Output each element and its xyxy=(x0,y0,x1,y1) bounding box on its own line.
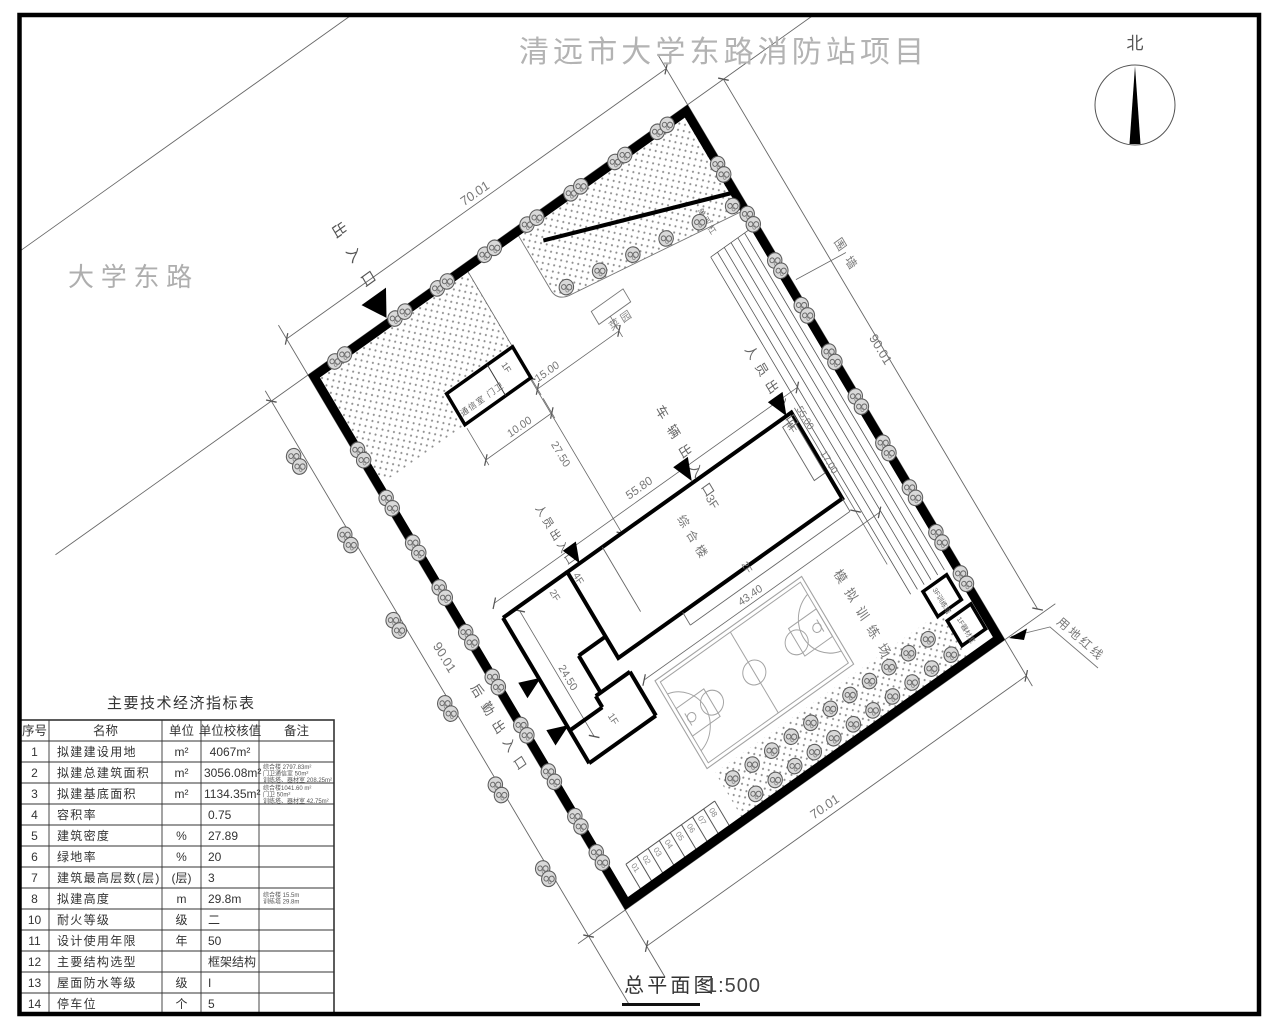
svg-text:建筑最高层数(层): 建筑最高层数(层) xyxy=(57,870,161,885)
svg-text:训练塔 29.8m: 训练塔 29.8m xyxy=(263,897,299,905)
svg-text:主要技术经济指标表: 主要技术经济指标表 xyxy=(107,695,256,712)
svg-text:拟建高度: 拟建高度 xyxy=(57,891,110,906)
svg-text:5: 5 xyxy=(208,997,215,1011)
svg-text:1134.35m²: 1134.35m² xyxy=(204,787,260,801)
svg-text:29.8m: 29.8m xyxy=(208,892,241,906)
svg-text:二: 二 xyxy=(208,913,220,927)
svg-text:m²: m² xyxy=(175,745,189,759)
svg-text:3: 3 xyxy=(208,871,215,885)
svg-text:7: 7 xyxy=(31,871,38,885)
svg-text:50: 50 xyxy=(208,934,222,948)
svg-text:%: % xyxy=(176,850,187,864)
svg-text:10: 10 xyxy=(28,913,42,927)
svg-text:1:500: 1:500 xyxy=(706,975,761,997)
svg-text:序号: 序号 xyxy=(22,723,47,738)
svg-text:1: 1 xyxy=(31,745,38,759)
svg-text:拟建基底面积: 拟建基底面积 xyxy=(57,786,137,801)
svg-text:备注: 备注 xyxy=(284,723,310,738)
svg-text:3: 3 xyxy=(31,787,38,801)
svg-text:m²: m² xyxy=(175,766,189,780)
svg-text:6: 6 xyxy=(31,850,38,864)
svg-text:北: 北 xyxy=(1127,34,1144,53)
svg-text:名称: 名称 xyxy=(93,723,118,738)
svg-text:27.89: 27.89 xyxy=(208,829,238,843)
svg-text:总平面图: 总平面图 xyxy=(624,974,717,997)
svg-text:级: 级 xyxy=(175,913,187,927)
svg-text:单位: 单位 xyxy=(169,723,194,738)
svg-text:个: 个 xyxy=(175,997,187,1011)
svg-text:绿地率: 绿地率 xyxy=(57,849,97,864)
svg-text:大学东路: 大学东路 xyxy=(68,262,199,292)
svg-text:综合楼 2797.83m²: 综合楼 2797.83m² xyxy=(263,763,311,771)
svg-text:清远市大学东路消防站项目: 清远市大学东路消防站项目 xyxy=(519,36,928,69)
svg-text:门卫 50m²: 门卫 50m² xyxy=(263,790,290,798)
svg-text:m²: m² xyxy=(175,787,189,801)
svg-text:拟建建设用地: 拟建建设用地 xyxy=(57,745,137,759)
svg-text:主要结构选型: 主要结构选型 xyxy=(57,954,137,969)
svg-text:11: 11 xyxy=(28,934,41,948)
svg-text:拟建总建筑面积: 拟建总建筑面积 xyxy=(57,765,150,780)
svg-text:0.75: 0.75 xyxy=(208,808,232,822)
svg-text:8: 8 xyxy=(31,892,38,906)
svg-text:训练塔、器材室 42.75m²: 训练塔、器材室 42.75m² xyxy=(263,797,329,805)
svg-text:2: 2 xyxy=(31,766,38,780)
svg-text:设计使用年限: 设计使用年限 xyxy=(57,933,137,948)
svg-text:3056.08m²: 3056.08m² xyxy=(204,766,261,780)
svg-text:%: % xyxy=(176,829,187,843)
svg-text:屋面防水等级: 屋面防水等级 xyxy=(57,975,137,990)
svg-text:5: 5 xyxy=(31,829,38,843)
svg-text:(层): (层) xyxy=(172,871,192,885)
svg-text:年: 年 xyxy=(175,934,187,948)
svg-text:停车位: 停车位 xyxy=(57,996,97,1011)
svg-text:建筑密度: 建筑密度 xyxy=(57,828,110,843)
svg-text:m: m xyxy=(177,892,187,906)
svg-text:框架结构: 框架结构 xyxy=(208,954,256,969)
svg-text:训练塔、器材室 208.25m²: 训练塔、器材室 208.25m² xyxy=(263,776,332,784)
svg-text:容积率: 容积率 xyxy=(57,807,97,822)
svg-text:耐火等级: 耐火等级 xyxy=(57,913,110,927)
svg-text:门卫通信室 50m²: 门卫通信室 50m² xyxy=(263,769,308,777)
svg-text:I: I xyxy=(208,976,211,990)
svg-text:级: 级 xyxy=(175,976,187,990)
svg-text:4: 4 xyxy=(31,808,38,822)
svg-text:4067m²: 4067m² xyxy=(210,745,251,759)
svg-text:20: 20 xyxy=(208,850,222,864)
svg-text:12: 12 xyxy=(28,955,42,969)
svg-text:综合楼 15.5m: 综合楼 15.5m xyxy=(263,891,299,899)
svg-text:13: 13 xyxy=(28,976,42,990)
svg-text:14: 14 xyxy=(28,997,42,1011)
svg-text:单位校核值: 单位校核值 xyxy=(199,723,262,738)
svg-text:综合楼1041.60 m²: 综合楼1041.60 m² xyxy=(263,784,311,792)
